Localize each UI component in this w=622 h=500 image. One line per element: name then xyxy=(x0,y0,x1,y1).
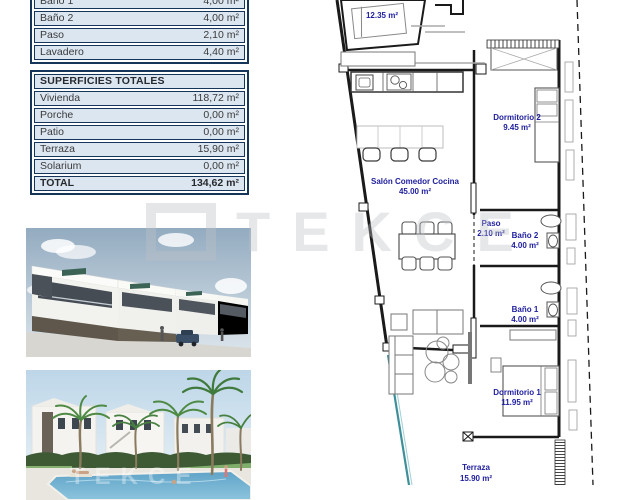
table-row: Vivienda 118,72 m² xyxy=(34,91,245,106)
table-row: Patio 0,00 m² xyxy=(34,125,245,140)
room-label-terraza-name: Terraza xyxy=(462,463,490,472)
table-header-label: SUPERFICIES TOTALES xyxy=(40,75,165,88)
table-row: Porche 0,00 m² xyxy=(34,108,245,123)
room-areas-table: Baño 1 4,00 m² Baño 2 4,00 m² Paso 2,10 … xyxy=(30,0,249,64)
table-row-total: TOTAL 134,62 m² xyxy=(34,176,245,191)
table-cell-label: Patio xyxy=(40,126,64,139)
table-row: Solarium 0,00 m² xyxy=(34,159,245,174)
tv xyxy=(468,332,472,384)
table-cell-label: Baño 2 xyxy=(40,12,73,25)
render-exterior-street xyxy=(26,228,251,357)
bedroom2-furniture xyxy=(487,40,559,162)
totals-table: SUPERFICIES TOTALES Vivienda 118,72 m² P… xyxy=(30,70,249,195)
kitchen-counter xyxy=(341,52,463,92)
table-cell-value: 0,00 m² xyxy=(203,109,239,122)
room-label-dorm1-area: 11.95 m² xyxy=(501,398,533,407)
room-label-salon-name: Salón Comedor Cocina xyxy=(371,177,460,186)
top-room-bed xyxy=(352,3,407,38)
room-label-paso-name: Paso xyxy=(481,219,500,228)
table-cell-label: Lavadero xyxy=(40,46,84,59)
totals-table-header: SUPERFICIES TOTALES xyxy=(34,74,245,89)
table-cell-value: 4,00 m² xyxy=(203,0,239,8)
table-cell-label: TOTAL xyxy=(40,177,74,190)
table-row: Terraza 15,90 m² xyxy=(34,142,245,157)
plant xyxy=(425,337,459,383)
table-cell-value: 134,62 m² xyxy=(191,177,239,190)
table-cell-value: 118,72 m² xyxy=(193,92,240,105)
boundary-dashed-line xyxy=(577,0,593,485)
table-cell-value: 4,00 m² xyxy=(203,12,239,25)
render-exterior-pool xyxy=(26,370,251,500)
table-cell-label: Paso xyxy=(40,29,64,42)
room-label-bano1-name: Baño 1 xyxy=(512,305,539,314)
room-label-terraza-area: 15.90 m² xyxy=(460,474,492,483)
floor-plan: 12.35 m² Salón Comedor Cocina 45.00 m² P… xyxy=(325,0,622,485)
pillar-hatched xyxy=(555,440,565,485)
table-cell-value: 0,00 m² xyxy=(203,126,239,139)
table-cell-label: Porche xyxy=(40,109,73,122)
table-cell-label: Terraza xyxy=(40,143,75,156)
room-label-bano2-name: Baño 2 xyxy=(512,231,539,240)
table-row: Paso 2,10 m² xyxy=(34,28,245,43)
dining-bar xyxy=(357,126,443,161)
room-label-dorm2-area: 9.45 m² xyxy=(503,123,531,132)
table-cell-label: Baño 1 xyxy=(40,0,73,8)
room-label-bano1-area: 4.00 m² xyxy=(511,315,539,324)
table-row: Baño 1 4,00 m² xyxy=(34,0,245,9)
room-label-bano2-area: 4.00 m² xyxy=(511,241,539,250)
table-row: Baño 2 4,00 m² xyxy=(34,11,245,26)
room-label-dorm2-name: Dormitorio 2 xyxy=(493,113,541,122)
room-label-dorm1-name: Dormitorio 1 xyxy=(493,388,541,397)
table-cell-value: 15,90 m² xyxy=(198,143,239,156)
table-cell-value: 4,40 m² xyxy=(203,46,239,59)
table-cell-value: 0,00 m² xyxy=(203,160,239,173)
room-label-salon-area: 45.00 m² xyxy=(399,187,431,196)
room-label-paso-area: 2.10 m² xyxy=(477,229,505,238)
table-row: Lavadero 4,40 m² xyxy=(34,45,245,60)
dining-table xyxy=(399,222,455,270)
room-label-top-partial: 12.35 m² xyxy=(366,11,398,20)
table-cell-label: Vivienda xyxy=(40,92,80,105)
table-cell-value: 2,10 m² xyxy=(203,29,239,42)
sofa xyxy=(389,336,413,394)
table-cell-label: Solarium xyxy=(40,160,81,173)
neighbour-unit-fixtures xyxy=(565,62,577,430)
